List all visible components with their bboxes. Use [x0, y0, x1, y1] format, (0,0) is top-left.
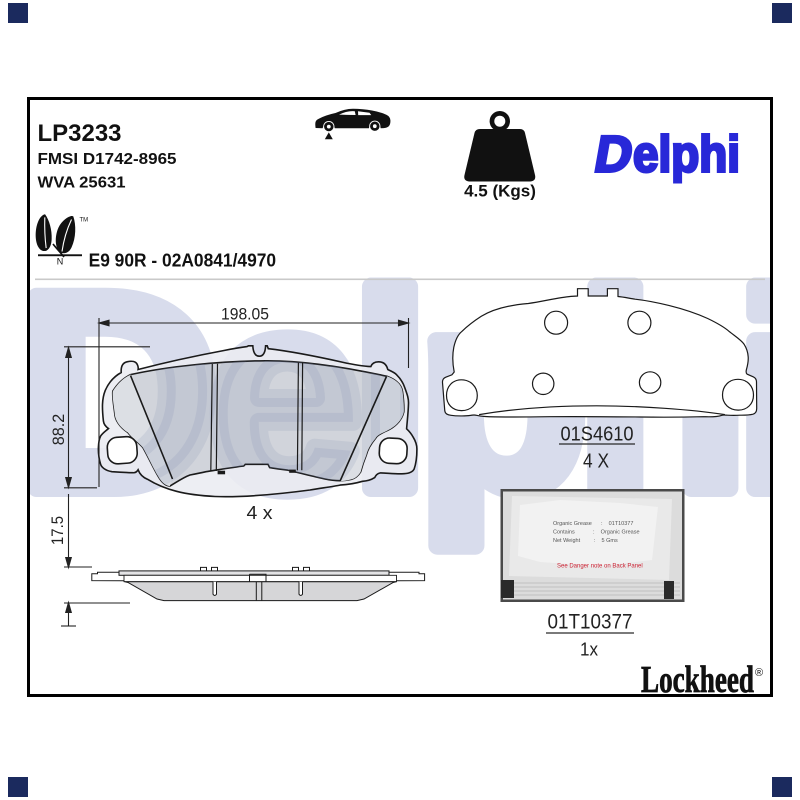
svg-text:01T10377: 01T10377	[548, 611, 633, 634]
svg-text:4 x: 4 x	[247, 502, 274, 523]
svg-text:Net Weight : 5 Gms: Net Weight : 5 Gms	[553, 538, 618, 544]
svg-text:N: N	[57, 257, 64, 267]
svg-text:TM: TM	[80, 218, 89, 224]
svg-text:4 X: 4 X	[583, 450, 609, 473]
svg-text:01S4610: 01S4610	[561, 424, 634, 446]
svg-text:E9 90R - 02A0841/4970: E9 90R - 02A0841/4970	[89, 251, 277, 271]
svg-text:88.2: 88.2	[49, 414, 68, 446]
svg-text:198.05: 198.05	[221, 305, 269, 324]
svg-text:LP3233: LP3233	[38, 120, 122, 147]
svg-text:FMSI D1742-8965: FMSI D1742-8965	[38, 151, 177, 168]
svg-text:elphi: elphi	[633, 125, 740, 182]
svg-text:Lockheed: Lockheed	[641, 659, 754, 701]
svg-text:Organic Grease : 01T10: Organic Grease : 01T10377	[553, 521, 633, 527]
svg-text:4.5 (Kgs): 4.5 (Kgs)	[464, 182, 536, 201]
svg-text:1x: 1x	[580, 640, 598, 660]
svg-text:17.5: 17.5	[48, 516, 67, 545]
svg-text:®: ®	[755, 667, 763, 679]
svg-text:Contains : Organ: Contains : Organic Grease	[553, 530, 640, 536]
svg-text:WVA 25631: WVA 25631	[38, 175, 126, 192]
svg-text:See Danger note on Back Panel: See Danger note on Back Panel	[557, 564, 643, 570]
